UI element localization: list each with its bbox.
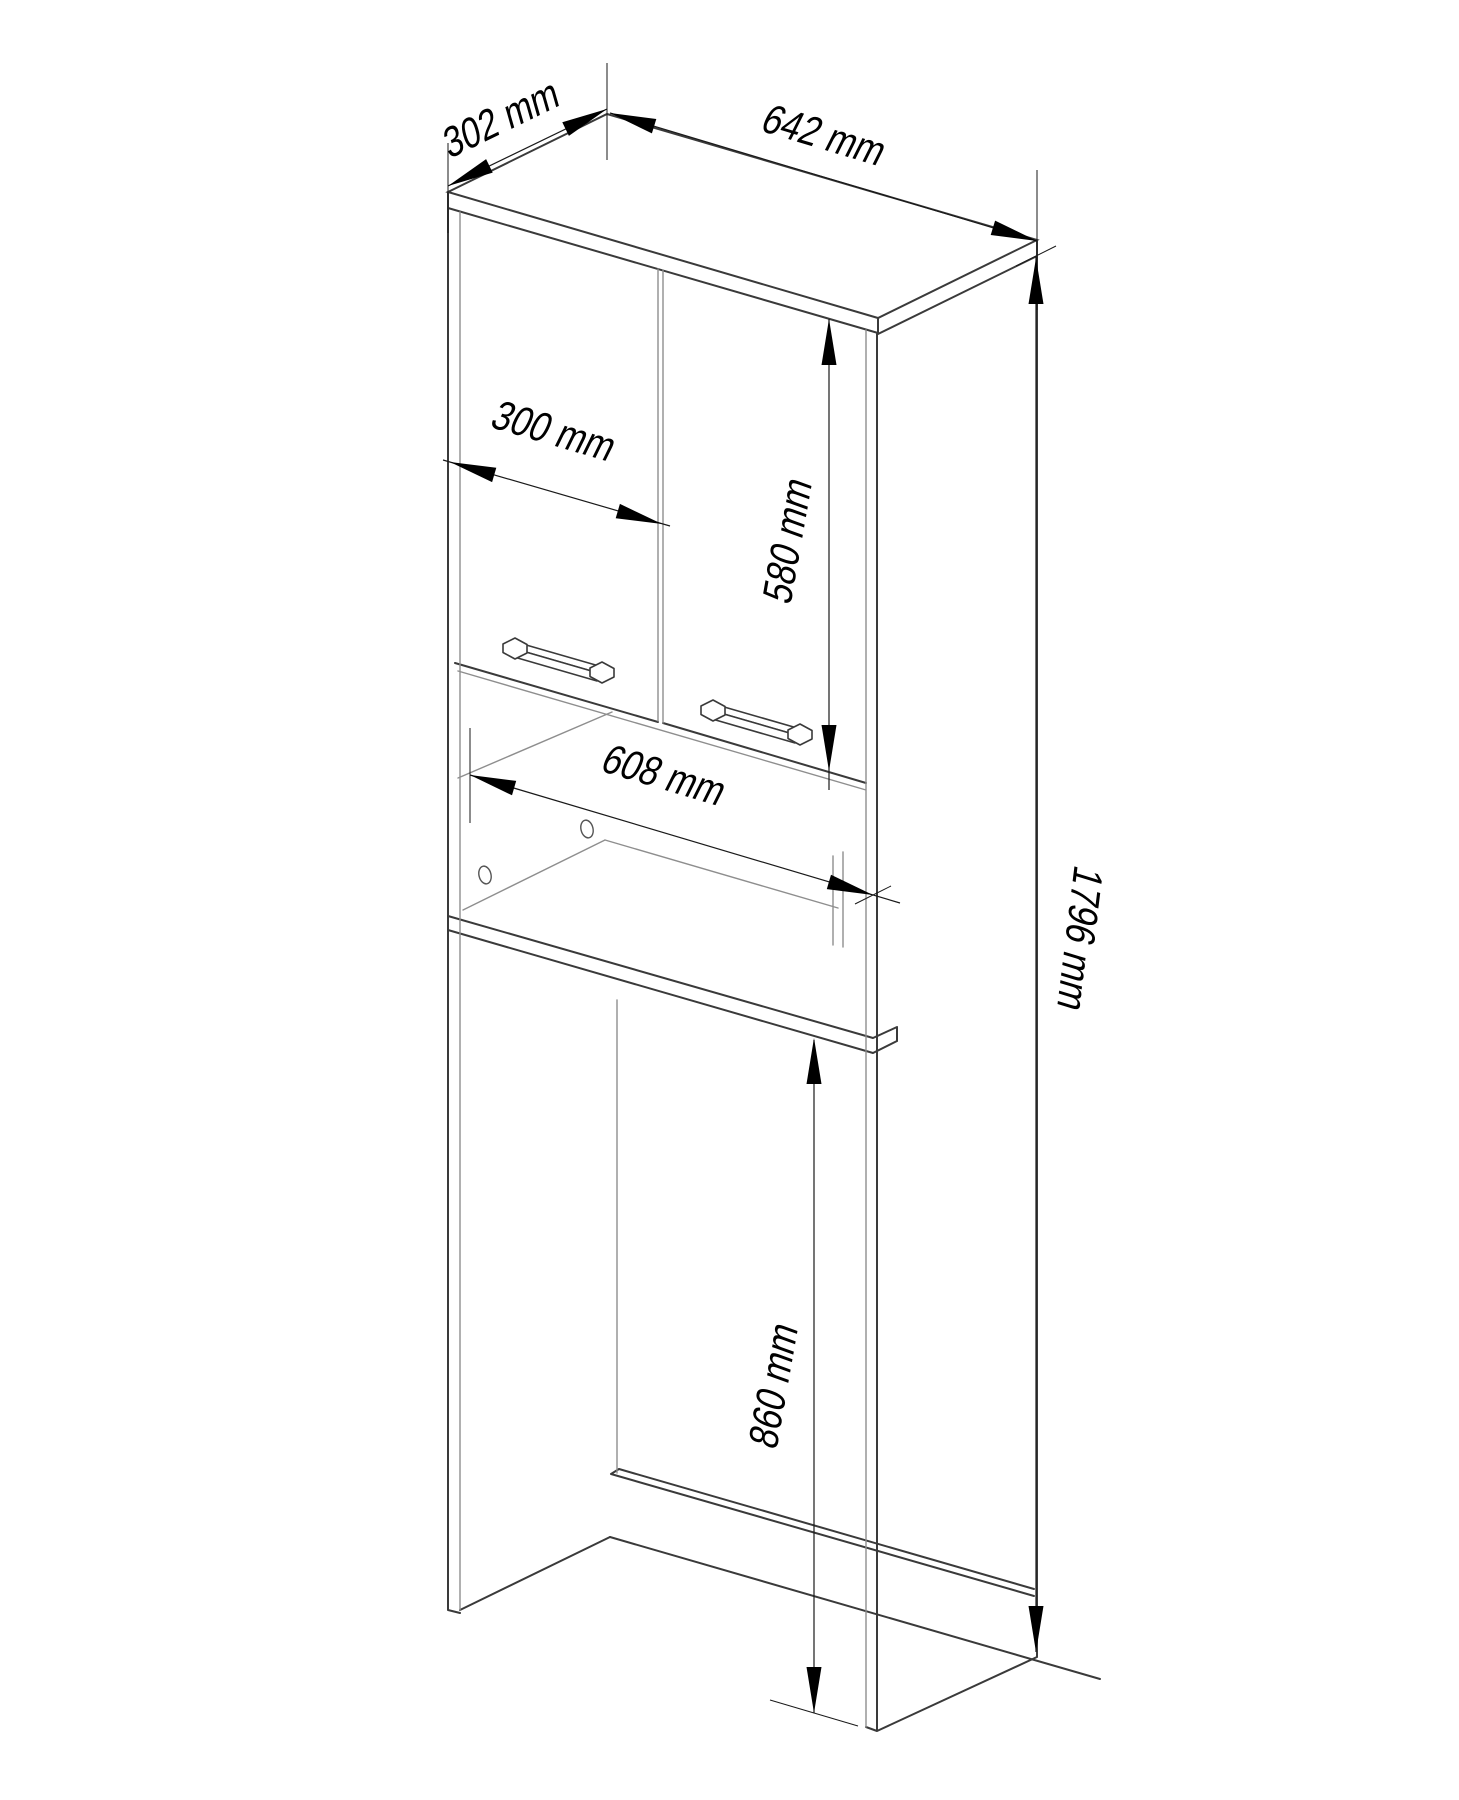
dimension-label-door-width: 300 mm <box>484 393 624 470</box>
dimension-label-top-depth: 302 mm <box>439 69 564 169</box>
arrow-up <box>1029 258 1044 304</box>
dimension-door-width: 300 mm <box>443 393 670 526</box>
cabinet-technical-drawing: 302 mm 642 mm 300 mm 580 mm 608 mm 1796 <box>0 0 1459 1800</box>
dimension-label-washer-opening-height: 860 mm <box>741 1316 807 1455</box>
arrow-left <box>610 113 656 133</box>
dimension-label-niche-width: 608 mm <box>594 737 734 815</box>
technical-drawing-page: 302 mm 642 mm 300 mm 580 mm 608 mm 1796 <box>0 0 1459 1800</box>
dimension-label-overall-height: 1796 mm <box>1048 861 1111 1017</box>
left-door-handle <box>503 638 614 683</box>
arrow-up <box>807 1038 822 1084</box>
dimension-niche-width: 608 mm <box>470 728 900 904</box>
shelf-pin-hole <box>477 865 493 885</box>
dimension-washer-opening-height: 860 mm <box>741 1038 858 1726</box>
right-panel-edges <box>866 256 1037 1731</box>
arrow-right <box>616 504 662 524</box>
dimension-label-door-height: 580 mm <box>755 471 821 610</box>
arrow-down <box>1029 1606 1044 1652</box>
cabinet-outline <box>448 114 1100 1731</box>
shelf-pin-hole <box>579 819 595 839</box>
arrow-left <box>450 462 496 482</box>
dimension-top-depth: 302 mm <box>439 63 607 233</box>
plinth-edges <box>610 1469 1100 1679</box>
dimension-overall-height: 1796 mm <box>1016 246 1111 1652</box>
arrow-down <box>807 1667 822 1713</box>
arrow-down <box>822 725 837 771</box>
dimension-top-width: 642 mm <box>610 97 1037 310</box>
arrow-right <box>562 109 607 136</box>
separator-board-edges <box>448 916 897 1053</box>
arrow-right <box>991 221 1037 241</box>
top-board-edges <box>448 114 1037 334</box>
arrow-left <box>470 775 516 795</box>
arrow-up <box>822 319 837 365</box>
